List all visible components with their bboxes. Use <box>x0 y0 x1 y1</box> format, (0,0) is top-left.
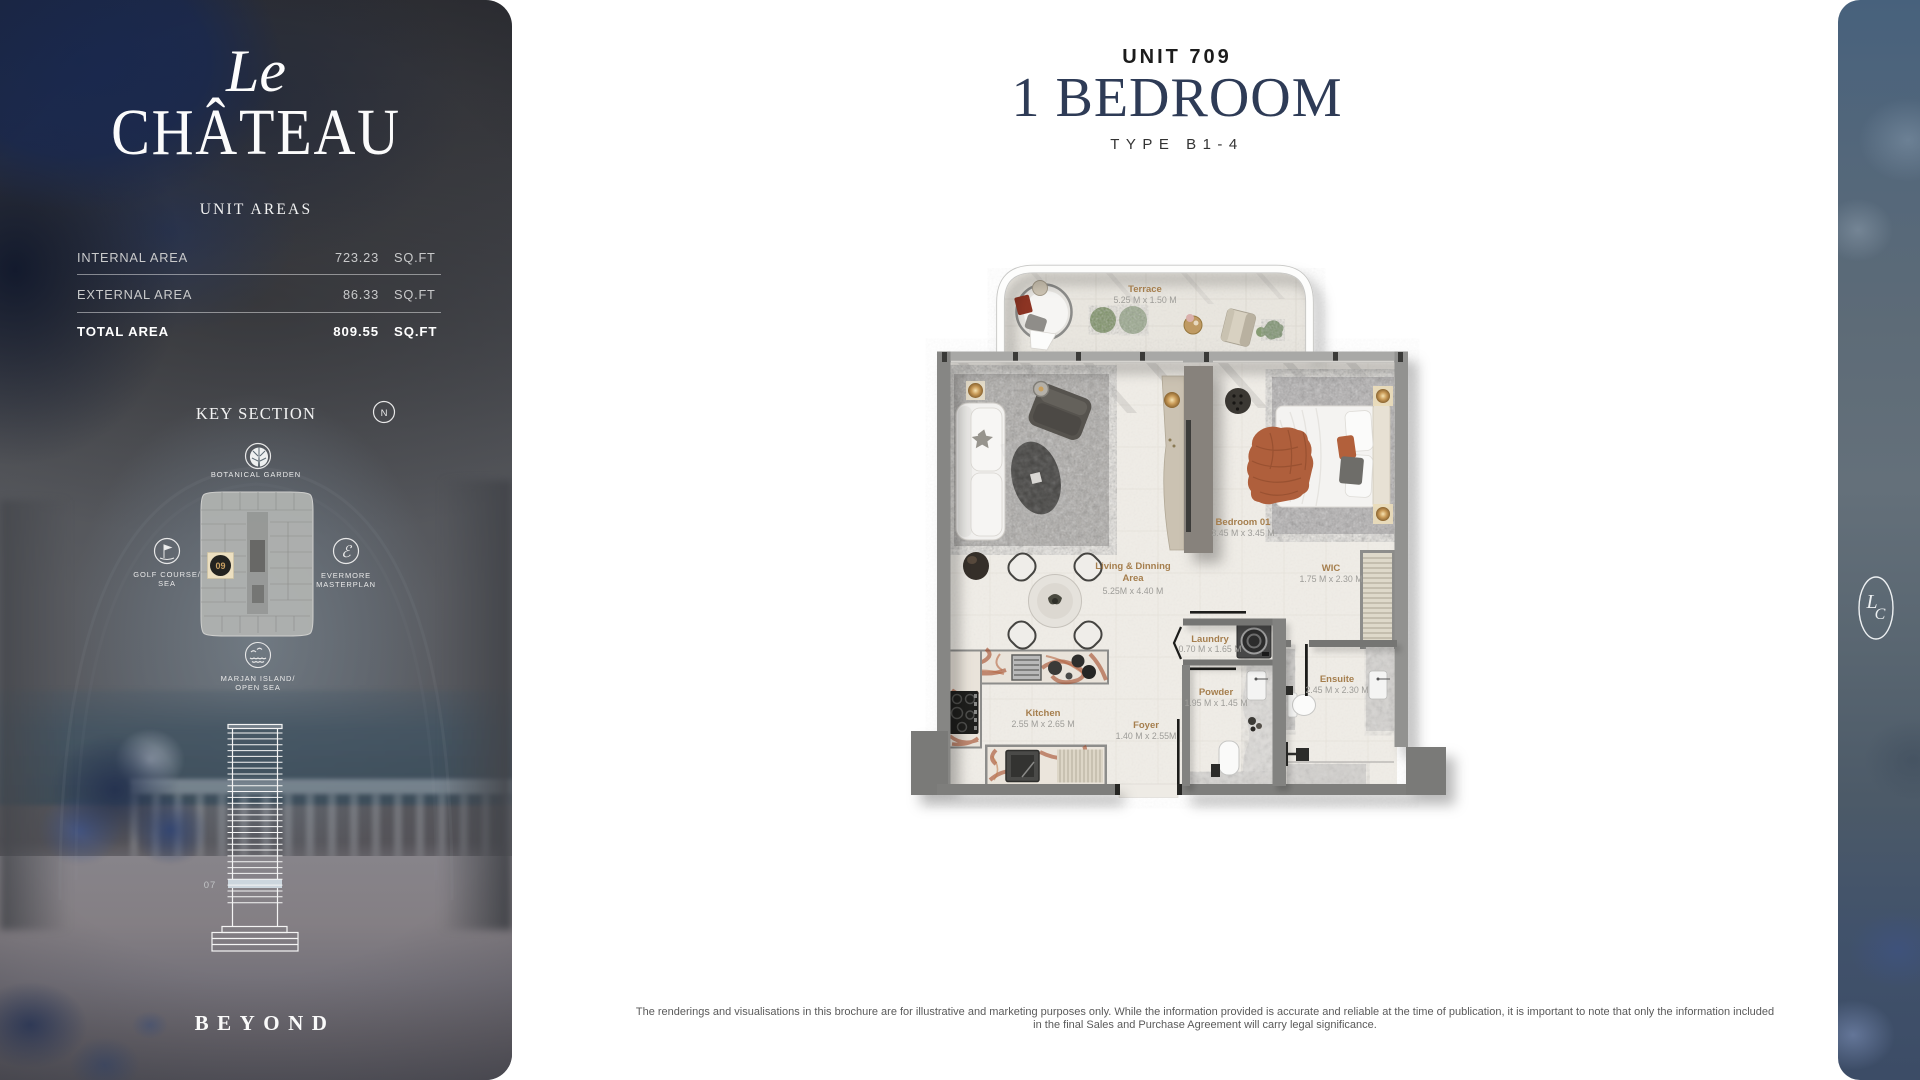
svg-text:07: 07 <box>204 880 217 891</box>
svg-text:5.25 M x 1.50 M: 5.25 M x 1.50 M <box>1113 295 1176 305</box>
svg-text:5.25M x 4.40 M: 5.25M x 4.40 M <box>1103 586 1164 596</box>
svg-text:Bedroom 01: Bedroom 01 <box>1216 517 1272 528</box>
svg-text:3.45 M x 3.45 M: 3.45 M x 3.45 M <box>1211 528 1274 538</box>
svg-text:1.75 M x 2.30 M: 1.75 M x 2.30 M <box>1299 574 1362 584</box>
svg-text:Area: Area <box>1122 573 1144 584</box>
svg-text:2.55 M x 2.65 M: 2.55 M x 2.65 M <box>1011 719 1074 729</box>
svg-text:Ensuite: Ensuite <box>1320 674 1354 685</box>
svg-text:1.40 M x 2.55M: 1.40 M x 2.55M <box>1116 731 1177 741</box>
svg-text:Powder: Powder <box>1199 687 1234 698</box>
svg-text:WIC: WIC <box>1322 563 1341 574</box>
svg-text:2.45 M x 2.30 M: 2.45 M x 2.30 M <box>1305 685 1368 695</box>
svg-text:ℰ: ℰ <box>341 544 353 561</box>
svg-text:Terrace: Terrace <box>1128 284 1162 295</box>
svg-text:1.95 M x 1.45 M: 1.95 M x 1.45 M <box>1184 698 1247 708</box>
svg-text:Living & Dinning: Living & Dinning <box>1095 561 1171 572</box>
svg-text:Kitchen: Kitchen <box>1026 708 1061 719</box>
svg-text:C: C <box>1875 606 1886 623</box>
svg-text:Foyer: Foyer <box>1133 720 1159 731</box>
svg-text:0.70 M x 1.65 M: 0.70 M x 1.65 M <box>1178 644 1241 654</box>
svg-text:N: N <box>381 408 388 419</box>
